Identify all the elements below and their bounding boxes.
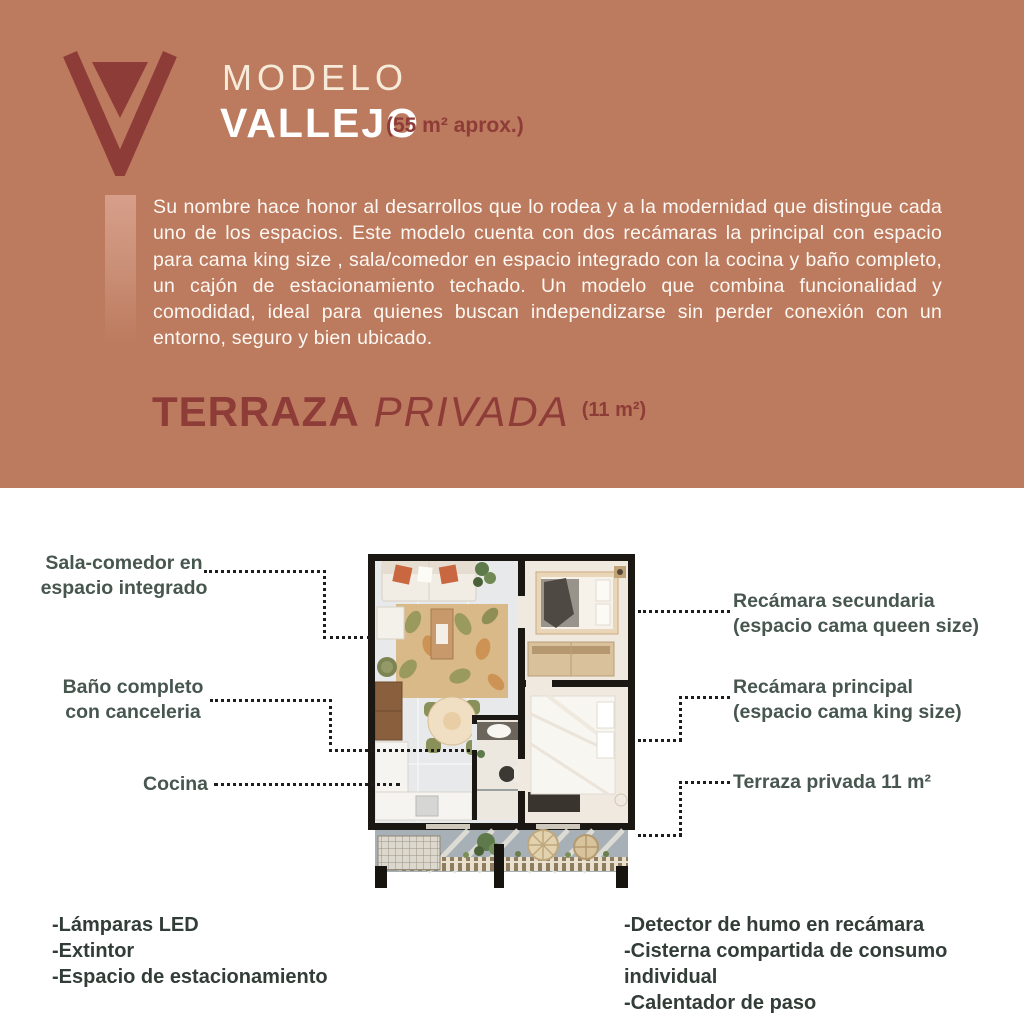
connector-principal-v bbox=[679, 696, 682, 741]
connector-secundaria bbox=[638, 610, 730, 613]
feature-item: -Calentador de paso bbox=[624, 990, 1024, 1016]
connector-sala-h2 bbox=[323, 636, 370, 639]
terrace-word-italic: PRIVADA bbox=[374, 388, 570, 435]
connector-terraza-h2 bbox=[638, 834, 682, 837]
callout-sala-comedor: Sala-comedor en espacio integrado bbox=[40, 551, 208, 601]
terrace-area-note: (11 m²) bbox=[582, 399, 646, 421]
hero-section: MODELO VALLEJO (55 m² aprox.) Su nombre … bbox=[0, 0, 1024, 488]
callout-terraza-privada: Terraza privada 11 m² bbox=[733, 770, 931, 795]
description-paragraph: Su nombre hace honor al desarrollos que … bbox=[153, 194, 942, 352]
connector-principal-h2 bbox=[638, 739, 682, 742]
callout-sala-line1: Sala-comedor en bbox=[40, 551, 208, 576]
terrace-word-bold: TERRAZA bbox=[152, 388, 360, 435]
feature-list-right: -Detector de humo en recámara -Cisterna … bbox=[624, 912, 1024, 1016]
callout-principal-line1: Recámara principal bbox=[733, 675, 962, 700]
callout-terraza-line1: Terraza privada 11 m² bbox=[733, 770, 931, 795]
feature-item: -Detector de humo en recámara bbox=[624, 912, 1024, 938]
callout-bano-line2: con canceleria bbox=[58, 700, 208, 725]
callout-cocina: Cocina bbox=[138, 772, 208, 797]
connector-principal-h1 bbox=[679, 696, 730, 699]
floor-plan-render bbox=[368, 554, 635, 888]
callout-bano-line1: Baño completo bbox=[58, 675, 208, 700]
callout-recamara-secundaria: Recámara secundaria (espacio cama queen … bbox=[733, 589, 979, 639]
callout-secundaria-line1: Recámara secundaria bbox=[733, 589, 979, 614]
connector-terraza-v bbox=[679, 781, 682, 836]
flyer-page: MODELO VALLEJO (55 m² aprox.) Su nombre … bbox=[0, 0, 1024, 1024]
feature-item: -Extintor bbox=[52, 938, 328, 964]
terrace-heading: TERRAZAPRIVADA(11 m²) bbox=[152, 388, 646, 436]
model-label: MODELO bbox=[222, 57, 408, 99]
connector-bano-h1 bbox=[210, 699, 332, 702]
callout-principal-line2: (espacio cama king size) bbox=[733, 700, 962, 725]
callout-cocina-line1: Cocina bbox=[138, 772, 208, 797]
connector-sala-v bbox=[323, 570, 326, 639]
connector-cocina bbox=[214, 783, 400, 786]
connector-bano-h2 bbox=[329, 749, 470, 752]
connector-sala-h1 bbox=[204, 570, 326, 573]
area-note: (55 m² aprox.) bbox=[386, 114, 524, 138]
callout-sala-line2: espacio integrado bbox=[40, 576, 208, 601]
feature-item: -Espacio de estacionamiento bbox=[52, 964, 328, 990]
connector-terraza-h1 bbox=[679, 781, 730, 784]
connector-bano-v bbox=[329, 699, 332, 752]
callout-secundaria-line2: (espacio cama queen size) bbox=[733, 614, 979, 639]
feature-item: -Lámparas LED bbox=[52, 912, 328, 938]
callout-bano: Baño completo con canceleria bbox=[58, 675, 208, 725]
feature-list-left: -Lámparas LED -Extintor -Espacio de esta… bbox=[52, 912, 328, 990]
feature-item: -Cisterna compartida de consumo individu… bbox=[624, 938, 1024, 990]
accent-bar bbox=[105, 195, 136, 345]
v-logo-icon bbox=[60, 46, 180, 176]
callout-recamara-principal: Recámara principal (espacio cama king si… bbox=[733, 675, 962, 725]
